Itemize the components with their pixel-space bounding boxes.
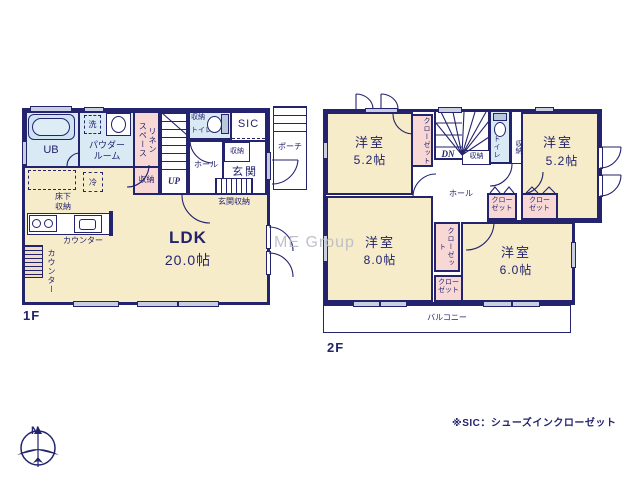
label-side-counter: カウンター — [44, 247, 56, 295]
window — [571, 242, 576, 268]
window — [30, 106, 72, 112]
label-porch: ポーチ — [277, 142, 303, 152]
label-washer: 洗 — [84, 120, 101, 130]
stove-icon — [29, 215, 57, 232]
toilet-tank-icon — [493, 113, 507, 121]
label-sw-closet: クロー ゼット — [434, 279, 463, 296]
toilet-bowl-icon — [207, 116, 222, 133]
ldk-door-band — [266, 251, 271, 275]
kitchen-sink-icon — [74, 215, 102, 233]
window-mullion — [379, 301, 381, 307]
compass-icon: N — [10, 417, 66, 475]
room-2f-se — [461, 222, 574, 302]
toilet-door-arc — [490, 164, 512, 186]
floor-plan-canvas: UB 洗 パウダー ルーム リネン スペース UP 収納 トイレ SIC 収納 … — [0, 0, 640, 480]
swing-window-arc — [356, 94, 373, 109]
window — [365, 108, 398, 113]
sw-room-door-arc — [413, 174, 436, 197]
swing-window-arc — [381, 94, 398, 109]
kitchen-counter — [27, 213, 111, 235]
label-nw-closet: クローゼット — [414, 117, 430, 165]
swing-window-arc — [600, 147, 621, 168]
underfloor-storage-box — [28, 170, 76, 190]
label-ne-closet: クロー ゼット — [521, 197, 558, 214]
floor1-plan: UB 洗 パウダー ルーム リネン スペース UP 収納 トイレ SIC 収納 … — [22, 104, 314, 322]
label-linen: リネン スペース — [135, 114, 157, 166]
floor2-plan: 洋室 5.2帖 クローゼット DN 収納 トイレ 収納 洋室 5.2帖 ホール … — [323, 93, 625, 358]
label-nw-room: 洋室 — [347, 135, 393, 151]
label-underfloor-storage: 床下 収納 — [49, 192, 77, 211]
side-counter — [24, 245, 43, 278]
window — [84, 107, 104, 112]
window — [73, 301, 119, 307]
label-stair-storage-1f: 収納 — [133, 175, 160, 185]
floor1-name: 1F — [23, 308, 57, 324]
label-ub: UB — [36, 144, 66, 157]
label-se-room: 洋室 — [493, 245, 539, 261]
label-nw-room-size: 5.2帖 — [343, 153, 397, 167]
window — [438, 107, 462, 113]
watermark: ME Group — [274, 234, 355, 252]
label-powder-room: パウダー ルーム — [82, 140, 132, 162]
wall-2f-left — [323, 109, 326, 305]
label-hall-closet: クロー ゼット — [487, 197, 517, 214]
window — [22, 141, 27, 165]
wall-1f-left — [22, 108, 25, 305]
window — [535, 107, 554, 112]
floor2-name: 2F — [327, 340, 361, 356]
label-balcony: バルコニー — [423, 313, 471, 323]
ldk-exterior-door-arc — [269, 253, 293, 277]
label-refrigerator: 冷 — [83, 178, 103, 188]
window-mullion — [177, 301, 179, 307]
swing-window-band — [598, 175, 603, 197]
ldk-door-band — [266, 225, 271, 249]
label-stairs-down: DN — [437, 149, 459, 160]
entrance-door-band — [266, 152, 271, 180]
swing-window-band — [598, 147, 603, 169]
wall-1f-right — [267, 108, 270, 305]
window — [323, 142, 328, 159]
entrance-storage-box — [215, 178, 253, 194]
label-ne-room: 洋室 — [535, 135, 581, 151]
label-entrance-closet: 収納 — [224, 148, 250, 156]
label-ne-room-size: 5.2帖 — [535, 154, 589, 168]
counter-wall-stub — [109, 211, 113, 236]
label-kitchen-counter: カウンター — [59, 236, 107, 246]
sink-basin — [111, 116, 126, 133]
wall-2f-step — [487, 220, 602, 223]
window-mullion — [511, 301, 513, 307]
label-stair-storage-2f: 収納 — [462, 153, 491, 161]
label-ldk-size: 20.0帖 — [155, 252, 221, 269]
toilet-tank-icon — [221, 114, 229, 134]
bathtub-inner — [32, 118, 70, 136]
label-sic: SIC — [230, 118, 267, 131]
sic-footnote: ※SIC：シューズインクローゼット — [452, 414, 616, 429]
label-entrance-storage: 玄関収納 — [212, 197, 256, 207]
bathtub-icon — [28, 114, 75, 140]
label-sw-room: 洋室 — [357, 235, 403, 251]
sink-icon — [106, 113, 131, 136]
label-hall-2f: ホール — [443, 189, 479, 199]
label-ldk: LDK — [158, 228, 218, 248]
label-se-room-size: 6.0帖 — [489, 263, 543, 277]
label-center-closet: クローゼット — [438, 224, 454, 270]
label-sw-room-size: 8.0帖 — [353, 253, 407, 267]
sic-open-edge — [232, 138, 265, 139]
label-stairs-up: UP — [162, 176, 186, 187]
swing-window-arc — [600, 175, 621, 196]
label-hall-1f: ホール — [190, 160, 222, 170]
label-toilet-2f: トイレ — [490, 133, 500, 161]
